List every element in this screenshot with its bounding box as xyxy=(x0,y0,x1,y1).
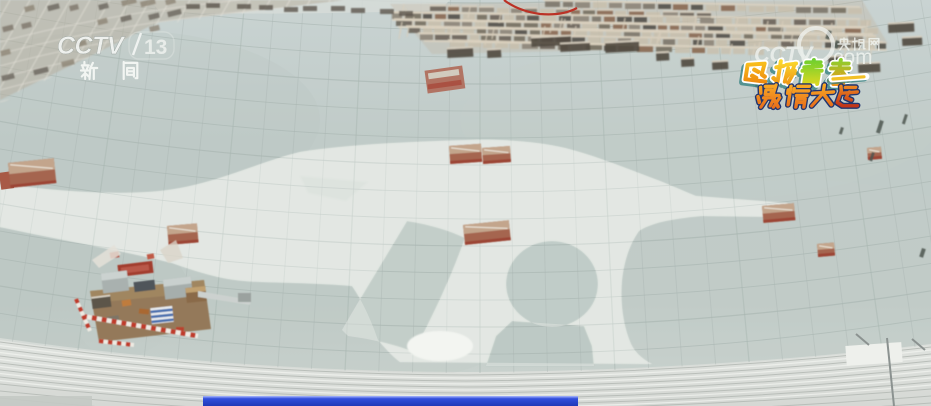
svg-text:CCTV: CCTV xyxy=(57,32,126,60)
svg-text:13: 13 xyxy=(144,36,167,59)
